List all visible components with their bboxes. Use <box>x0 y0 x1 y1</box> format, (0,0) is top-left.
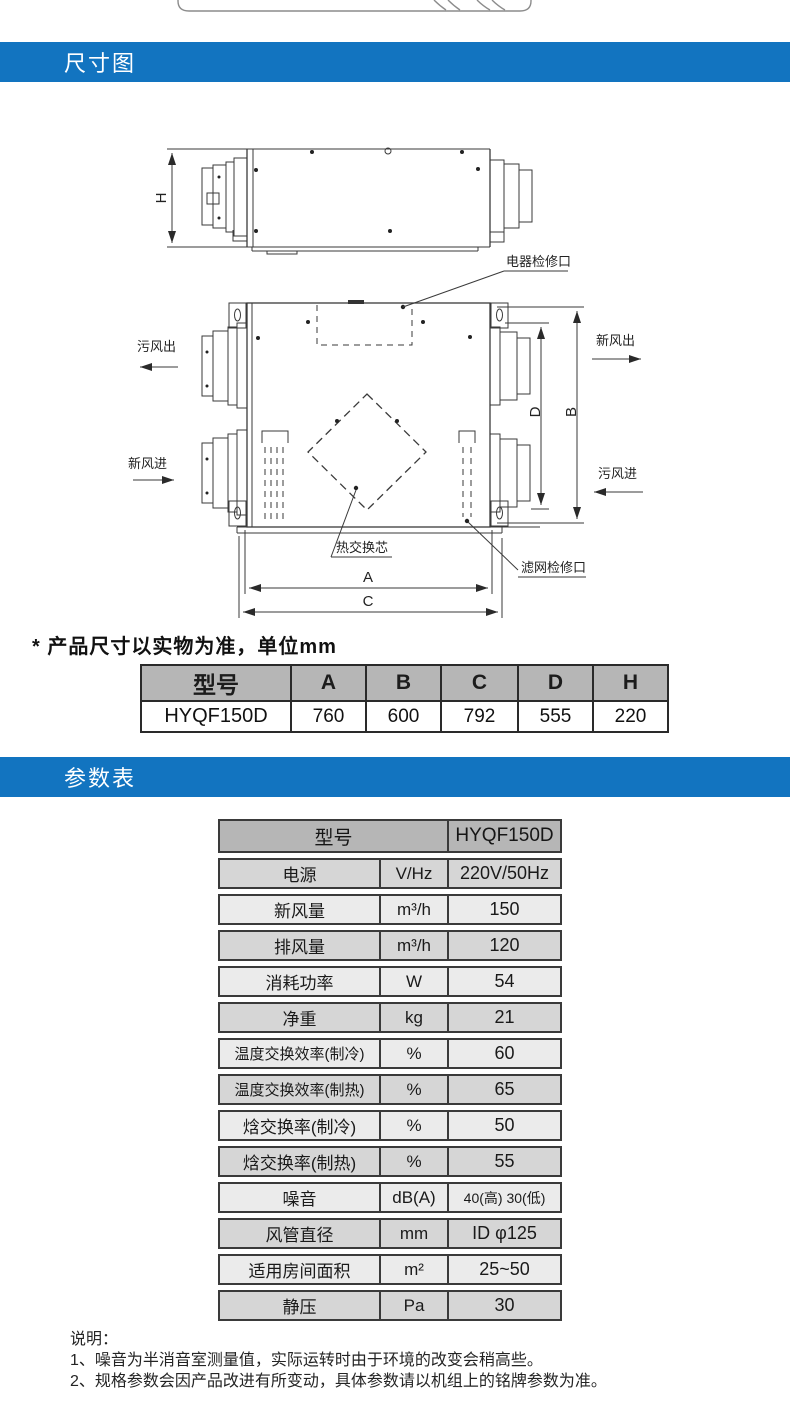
param-name: 焓交换率(制冷) <box>218 1110 380 1141</box>
label-heat-exchange-core: 热交换芯 <box>336 540 388 555</box>
dimension-d: D <box>505 323 549 509</box>
dimension-table: 型号 A B C D H HYQF150D 760 600 792 555 22… <box>140 664 669 733</box>
label-filter-access: 滤网检修口 <box>521 560 586 575</box>
param-row-power-consumption: 消耗功率 W 54 <box>218 966 562 997</box>
param-value: 120 <box>448 930 562 961</box>
param-value: 30 <box>448 1290 562 1321</box>
param-unit: m³/h <box>380 894 448 925</box>
param-row-net-weight: 净重 kg 21 <box>218 1002 562 1033</box>
callout-heat-exchange-core: 热交换芯 <box>331 490 392 557</box>
param-name: 适用房间面积 <box>218 1254 380 1285</box>
product-spec-page: H <box>0 0 790 1407</box>
param-row-enthalpy-cooling: 焓交换率(制冷) % 50 <box>218 1110 562 1141</box>
dim-c-value: 792 <box>441 701 518 732</box>
param-row-temp-efficiency-cooling: 温度交换效率(制冷) % 60 <box>218 1038 562 1069</box>
previous-figure-cutoff <box>178 0 531 11</box>
dimension-c-label: C <box>363 593 374 610</box>
param-row-exhaust-airflow: 排风量 m³/h 120 <box>218 930 562 961</box>
duct-fresh-air-out <box>490 327 530 405</box>
param-value: 54 <box>448 966 562 997</box>
param-value: ID φ125 <box>448 1218 562 1249</box>
dimension-b-label: B <box>563 407 580 417</box>
param-header-model-value: HYQF150D <box>448 819 562 853</box>
param-unit: m² <box>380 1254 448 1285</box>
callout-filter-access: 滤网检修口 <box>468 522 586 577</box>
duct-dirty-air-in <box>490 434 530 512</box>
unit-top-view: H <box>153 148 532 254</box>
heat-exchange-core-outline <box>308 394 426 510</box>
param-row-noise: 噪音 dB(A) 40(高) 30(低) <box>218 1182 562 1213</box>
param-name: 温度交换效率(制冷) <box>218 1038 380 1069</box>
dimension-diagram: H <box>0 0 790 660</box>
footnotes-title: 说明： <box>70 1329 607 1350</box>
param-value: 65 <box>448 1074 562 1105</box>
param-unit: V/Hz <box>380 858 448 889</box>
dimension-a-label: A <box>363 569 373 586</box>
footnotes: 说明： 1、噪音为半消音室测量值，实际运转时由于环境的改变会稍高些。 2、规格参… <box>70 1329 607 1392</box>
dim-col-c: C <box>441 665 518 701</box>
parameter-table-header-row: 型号 HYQF150D <box>218 819 562 853</box>
dim-h-value: 220 <box>593 701 668 732</box>
param-row-room-area: 适用房间面积 m² 25~50 <box>218 1254 562 1285</box>
section-header-dimensions: 尺寸图 <box>0 42 790 82</box>
duct-dirty-air-out <box>202 323 247 408</box>
param-row-power: 电源 V/Hz 220V/50Hz <box>218 858 562 889</box>
param-value: 50 <box>448 1110 562 1141</box>
dim-model-value: HYQF150D <box>141 701 291 732</box>
param-value: 55 <box>448 1146 562 1177</box>
param-name: 温度交换效率(制热) <box>218 1074 380 1105</box>
param-unit: W <box>380 966 448 997</box>
param-name: 电源 <box>218 858 380 889</box>
dimension-h: H <box>153 153 172 243</box>
label-dirty-air-out: 污风出 <box>137 339 176 354</box>
label-dirty-air-in: 污风进 <box>598 466 637 481</box>
dim-b-value: 600 <box>366 701 441 732</box>
dim-d-value: 555 <box>518 701 593 732</box>
dimension-table-header-row: 型号 A B C D H <box>141 665 668 701</box>
param-value: 60 <box>448 1038 562 1069</box>
param-unit: % <box>380 1110 448 1141</box>
param-name: 消耗功率 <box>218 966 380 997</box>
dim-col-a: A <box>291 665 366 701</box>
parameter-table: 型号 HYQF150D 电源 V/Hz 220V/50Hz 新风量 m³/h 1… <box>218 814 562 1326</box>
param-unit: mm <box>380 1218 448 1249</box>
dimension-note: * 产品尺寸以实物为准，单位mm <box>32 630 337 659</box>
right-duct-side-view <box>490 160 532 232</box>
param-value: 25~50 <box>448 1254 562 1285</box>
param-header-model-label: 型号 <box>218 819 448 853</box>
param-name: 焓交换率(制热) <box>218 1146 380 1177</box>
param-unit: % <box>380 1074 448 1105</box>
dim-col-h: H <box>593 665 668 701</box>
electric-access-opening <box>317 305 412 345</box>
param-name: 风管直径 <box>218 1218 380 1249</box>
param-value: 40(高) 30(低) <box>448 1182 562 1213</box>
param-unit: m³/h <box>380 930 448 961</box>
screw-dots <box>254 148 480 233</box>
param-row-enthalpy-heating: 焓交换率(制热) % 55 <box>218 1146 562 1177</box>
callout-electric-access: 电器检修口 <box>403 254 571 307</box>
filter-slots-right <box>459 431 475 517</box>
param-row-duct-diameter: 风管直径 mm ID φ125 <box>218 1218 562 1249</box>
param-row-temp-efficiency-heating: 温度交换效率(制热) % 65 <box>218 1074 562 1105</box>
param-unit: % <box>380 1146 448 1177</box>
param-unit: kg <box>380 1002 448 1033</box>
param-name: 静压 <box>218 1290 380 1321</box>
label-fresh-air-in: 新风进 <box>128 456 167 471</box>
param-name: 排风量 <box>218 930 380 961</box>
dimension-table-data-row: HYQF150D 760 600 792 555 220 <box>141 701 668 732</box>
dim-a-value: 760 <box>291 701 366 732</box>
dimension-h-label: H <box>153 193 170 204</box>
section-title-dimensions: 尺寸图 <box>64 46 136 78</box>
front-screw-dots <box>256 305 472 523</box>
param-row-static-pressure: 静压 Pa 30 <box>218 1290 562 1321</box>
dim-col-model: 型号 <box>141 665 291 701</box>
dim-col-b: B <box>366 665 441 701</box>
param-unit: Pa <box>380 1290 448 1321</box>
param-unit: dB(A) <box>380 1182 448 1213</box>
filter-slots-left <box>262 431 288 521</box>
param-name: 新风量 <box>218 894 380 925</box>
param-name: 净重 <box>218 1002 380 1033</box>
label-fresh-air-out: 新风出 <box>596 333 635 348</box>
unit-front-view: 污风出 新风进 新风出 污风进 D B <box>128 254 643 618</box>
param-unit: % <box>380 1038 448 1069</box>
dim-col-d: D <box>518 665 593 701</box>
param-value: 21 <box>448 1002 562 1033</box>
label-electric-access: 电器检修口 <box>506 254 571 269</box>
param-row-fresh-airflow: 新风量 m³/h 150 <box>218 894 562 925</box>
param-value: 220V/50Hz <box>448 858 562 889</box>
footnote-item: 1、噪音为半消音室测量值，实际运转时由于环境的改变会稍高些。 <box>70 1350 607 1371</box>
footnote-item: 2、规格参数会因产品改进有所变动，具体参数请以机组上的铭牌参数为准。 <box>70 1371 607 1392</box>
left-duct-side-view <box>202 158 247 236</box>
section-title-parameters: 参数表 <box>64 761 136 793</box>
dimension-d-label: D <box>527 406 544 417</box>
param-name: 噪音 <box>218 1182 380 1213</box>
param-value: 150 <box>448 894 562 925</box>
section-header-parameters: 参数表 <box>0 757 790 797</box>
duct-fresh-air-in <box>202 430 247 515</box>
